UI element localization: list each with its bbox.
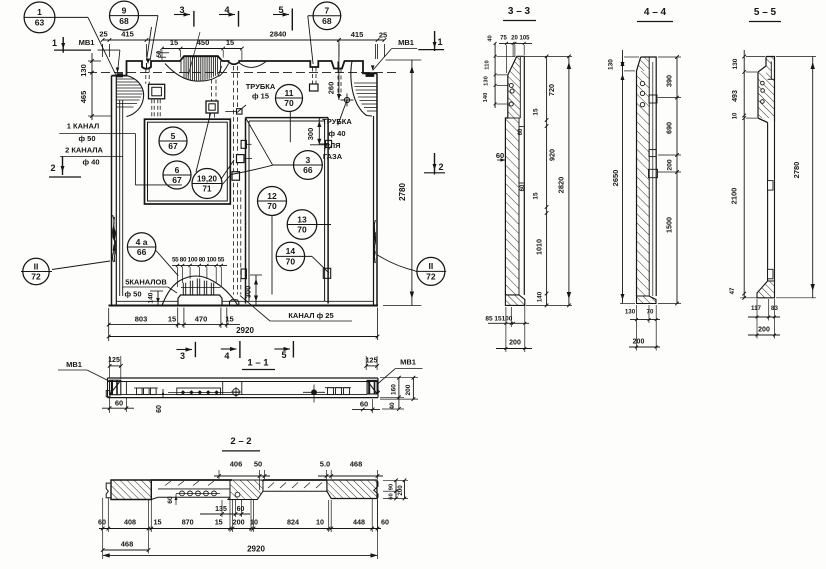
svg-text:415: 415 [351,30,364,39]
svg-text:КАНАЛ ф 25: КАНАЛ ф 25 [288,311,333,320]
svg-text:465: 465 [79,91,88,104]
svg-text:МВ1: МВ1 [400,358,416,367]
svg-text:70: 70 [647,309,654,316]
svg-text:110: 110 [485,60,491,69]
svg-text:ф 40: ф 40 [83,158,100,167]
svg-text:60: 60 [381,518,389,527]
svg-text:1010: 1010 [535,239,544,255]
svg-text:4 – 4: 4 – 4 [644,7,667,18]
svg-text:4 а: 4 а [136,237,148,247]
svg-text:72: 72 [31,272,41,282]
svg-text:200: 200 [509,340,521,347]
svg-text:2650: 2650 [611,170,620,187]
svg-text:60: 60 [115,399,123,408]
svg-text:МВ1: МВ1 [66,360,82,369]
svg-text:60: 60 [156,405,163,413]
svg-text:300: 300 [244,286,253,299]
svg-text:60: 60 [518,128,524,135]
svg-text:920: 920 [548,149,557,161]
svg-text:60: 60 [98,518,106,527]
svg-text:60: 60 [496,151,504,160]
svg-text:70: 70 [284,98,294,108]
svg-text:ТРУБКА: ТРУБКА [322,117,352,126]
svg-text:71: 71 [203,185,212,194]
svg-text:200: 200 [633,339,645,346]
svg-text:60: 60 [167,496,174,504]
svg-text:117: 117 [751,305,762,312]
svg-text:5: 5 [281,350,286,360]
svg-text:1 – 1: 1 – 1 [247,358,269,369]
svg-text:10: 10 [733,112,739,119]
svg-text:40: 40 [389,402,396,410]
svg-text:70: 70 [297,225,307,235]
svg-text:15: 15 [215,518,223,527]
svg-text:1: 1 [37,7,42,17]
svg-text:14: 14 [286,246,296,256]
svg-text:105: 105 [519,36,530,42]
svg-text:2: 2 [438,162,443,172]
svg-text:ф 50: ф 50 [79,134,96,143]
svg-text:II: II [429,261,434,271]
svg-text:15: 15 [154,518,162,527]
svg-text:68: 68 [322,16,332,26]
svg-text:72: 72 [426,272,436,282]
svg-text:67: 67 [172,175,182,185]
svg-text:3 – 3: 3 – 3 [508,6,531,17]
svg-text:ТРУБКА: ТРУБКА [246,82,276,91]
svg-text:2: 2 [50,163,55,173]
svg-text:ф 40: ф 40 [329,129,346,138]
svg-text:15: 15 [226,38,234,47]
svg-text:ф 15: ф 15 [252,92,269,101]
svg-text:448: 448 [353,518,365,527]
svg-text:60: 60 [360,400,368,409]
svg-text:200: 200 [758,327,770,334]
svg-text:II: II [34,261,39,271]
svg-text:2100: 2100 [730,188,739,205]
svg-text:75: 75 [500,36,507,42]
svg-text:70: 70 [267,201,277,211]
svg-text:1: 1 [52,38,57,48]
svg-text:125: 125 [108,357,120,364]
svg-text:450: 450 [197,38,210,47]
svg-text:40: 40 [488,35,494,41]
svg-text:47: 47 [730,287,736,294]
svg-text:63: 63 [35,18,45,28]
svg-text:15: 15 [170,38,178,47]
svg-text:2920: 2920 [236,326,254,335]
svg-text:468: 468 [121,540,134,549]
svg-text:200: 200 [667,159,674,171]
svg-text:690: 690 [665,122,674,134]
svg-text:85: 85 [485,316,493,323]
svg-text:67: 67 [168,141,178,151]
svg-text:68: 68 [119,16,129,26]
svg-text:1: 1 [437,37,442,47]
svg-text:5 – 5: 5 – 5 [754,7,777,18]
svg-text:100: 100 [502,316,513,323]
svg-text:5КАНАЛОВ: 5КАНАЛОВ [125,278,167,287]
svg-text:140: 140 [537,291,544,302]
svg-text:140: 140 [148,292,155,303]
svg-text:468: 468 [350,460,363,469]
svg-text:2840: 2840 [270,30,287,39]
svg-text:ГАЗА: ГАЗА [323,152,343,161]
svg-text:25: 25 [99,30,107,39]
svg-text:200: 200 [233,518,245,527]
svg-text:125: 125 [366,358,378,365]
svg-text:200: 200 [397,485,404,496]
svg-text:260: 260 [327,82,336,95]
svg-text:2920: 2920 [247,545,265,554]
svg-text:390: 390 [665,75,674,87]
svg-text:15: 15 [533,192,540,200]
svg-text:824: 824 [287,518,299,527]
svg-text:4: 4 [224,351,229,361]
svg-text:130: 130 [608,59,615,70]
svg-text:130: 130 [79,64,88,77]
svg-text:160: 160 [391,384,398,395]
svg-text:720: 720 [547,84,556,96]
svg-text:2780: 2780 [792,162,801,179]
svg-text:83: 83 [771,305,778,312]
svg-text:МВ1: МВ1 [79,38,95,47]
svg-text:130: 130 [625,309,636,316]
svg-text:803: 803 [135,315,148,324]
svg-text:1500: 1500 [665,217,674,233]
svg-text:90: 90 [389,484,395,490]
svg-text:60: 60 [520,184,526,191]
svg-text:6: 6 [175,165,180,175]
svg-text:19,20: 19,20 [197,174,218,183]
svg-text:415: 415 [121,30,134,39]
svg-text:1 КАНАЛ: 1 КАНАЛ [67,122,99,131]
svg-text:470: 470 [195,315,208,324]
svg-text:60: 60 [237,506,245,513]
svg-text:55 80 100 80 100 55: 55 80 100 80 100 55 [172,257,225,264]
svg-text:7: 7 [325,6,330,16]
svg-text:70: 70 [286,257,296,267]
svg-text:15: 15 [225,315,233,324]
svg-text:ф 50: ф 50 [125,290,142,299]
svg-text:ДЛЯ: ДЛЯ [325,141,341,150]
svg-text:870: 870 [182,518,194,527]
svg-text:66: 66 [303,165,313,175]
svg-text:5.0: 5.0 [320,460,330,469]
svg-text:60: 60 [389,493,395,499]
svg-text:2820: 2820 [557,177,566,194]
svg-text:9: 9 [122,5,127,15]
svg-text:493: 493 [732,90,739,102]
svg-text:50: 50 [157,50,163,57]
svg-text:2 – 2: 2 – 2 [230,436,251,447]
svg-text:300: 300 [306,128,315,141]
svg-text:2780: 2780 [398,183,407,201]
svg-text:25: 25 [379,31,387,40]
svg-text:13: 13 [297,214,307,224]
svg-text:12: 12 [267,191,277,201]
svg-text:50: 50 [254,460,262,469]
svg-text:2 КАНАЛА: 2 КАНАЛА [65,146,103,155]
svg-text:3: 3 [306,155,311,165]
svg-text:10: 10 [316,518,324,527]
svg-text:130: 130 [484,76,490,86]
svg-text:10: 10 [250,518,258,527]
svg-text:66: 66 [137,247,147,257]
svg-text:130: 130 [732,58,739,69]
svg-text:5: 5 [171,131,176,141]
svg-text:135: 135 [215,506,227,513]
svg-text:3: 3 [180,351,185,361]
svg-text:15: 15 [533,108,540,116]
svg-text:140: 140 [483,93,489,103]
svg-text:11: 11 [285,88,294,98]
svg-text:408: 408 [124,518,136,527]
svg-text:МВ1: МВ1 [398,38,414,47]
svg-text:406: 406 [230,460,243,469]
svg-text:15: 15 [168,315,176,324]
svg-text:20: 20 [511,36,518,42]
svg-text:200: 200 [405,384,412,395]
